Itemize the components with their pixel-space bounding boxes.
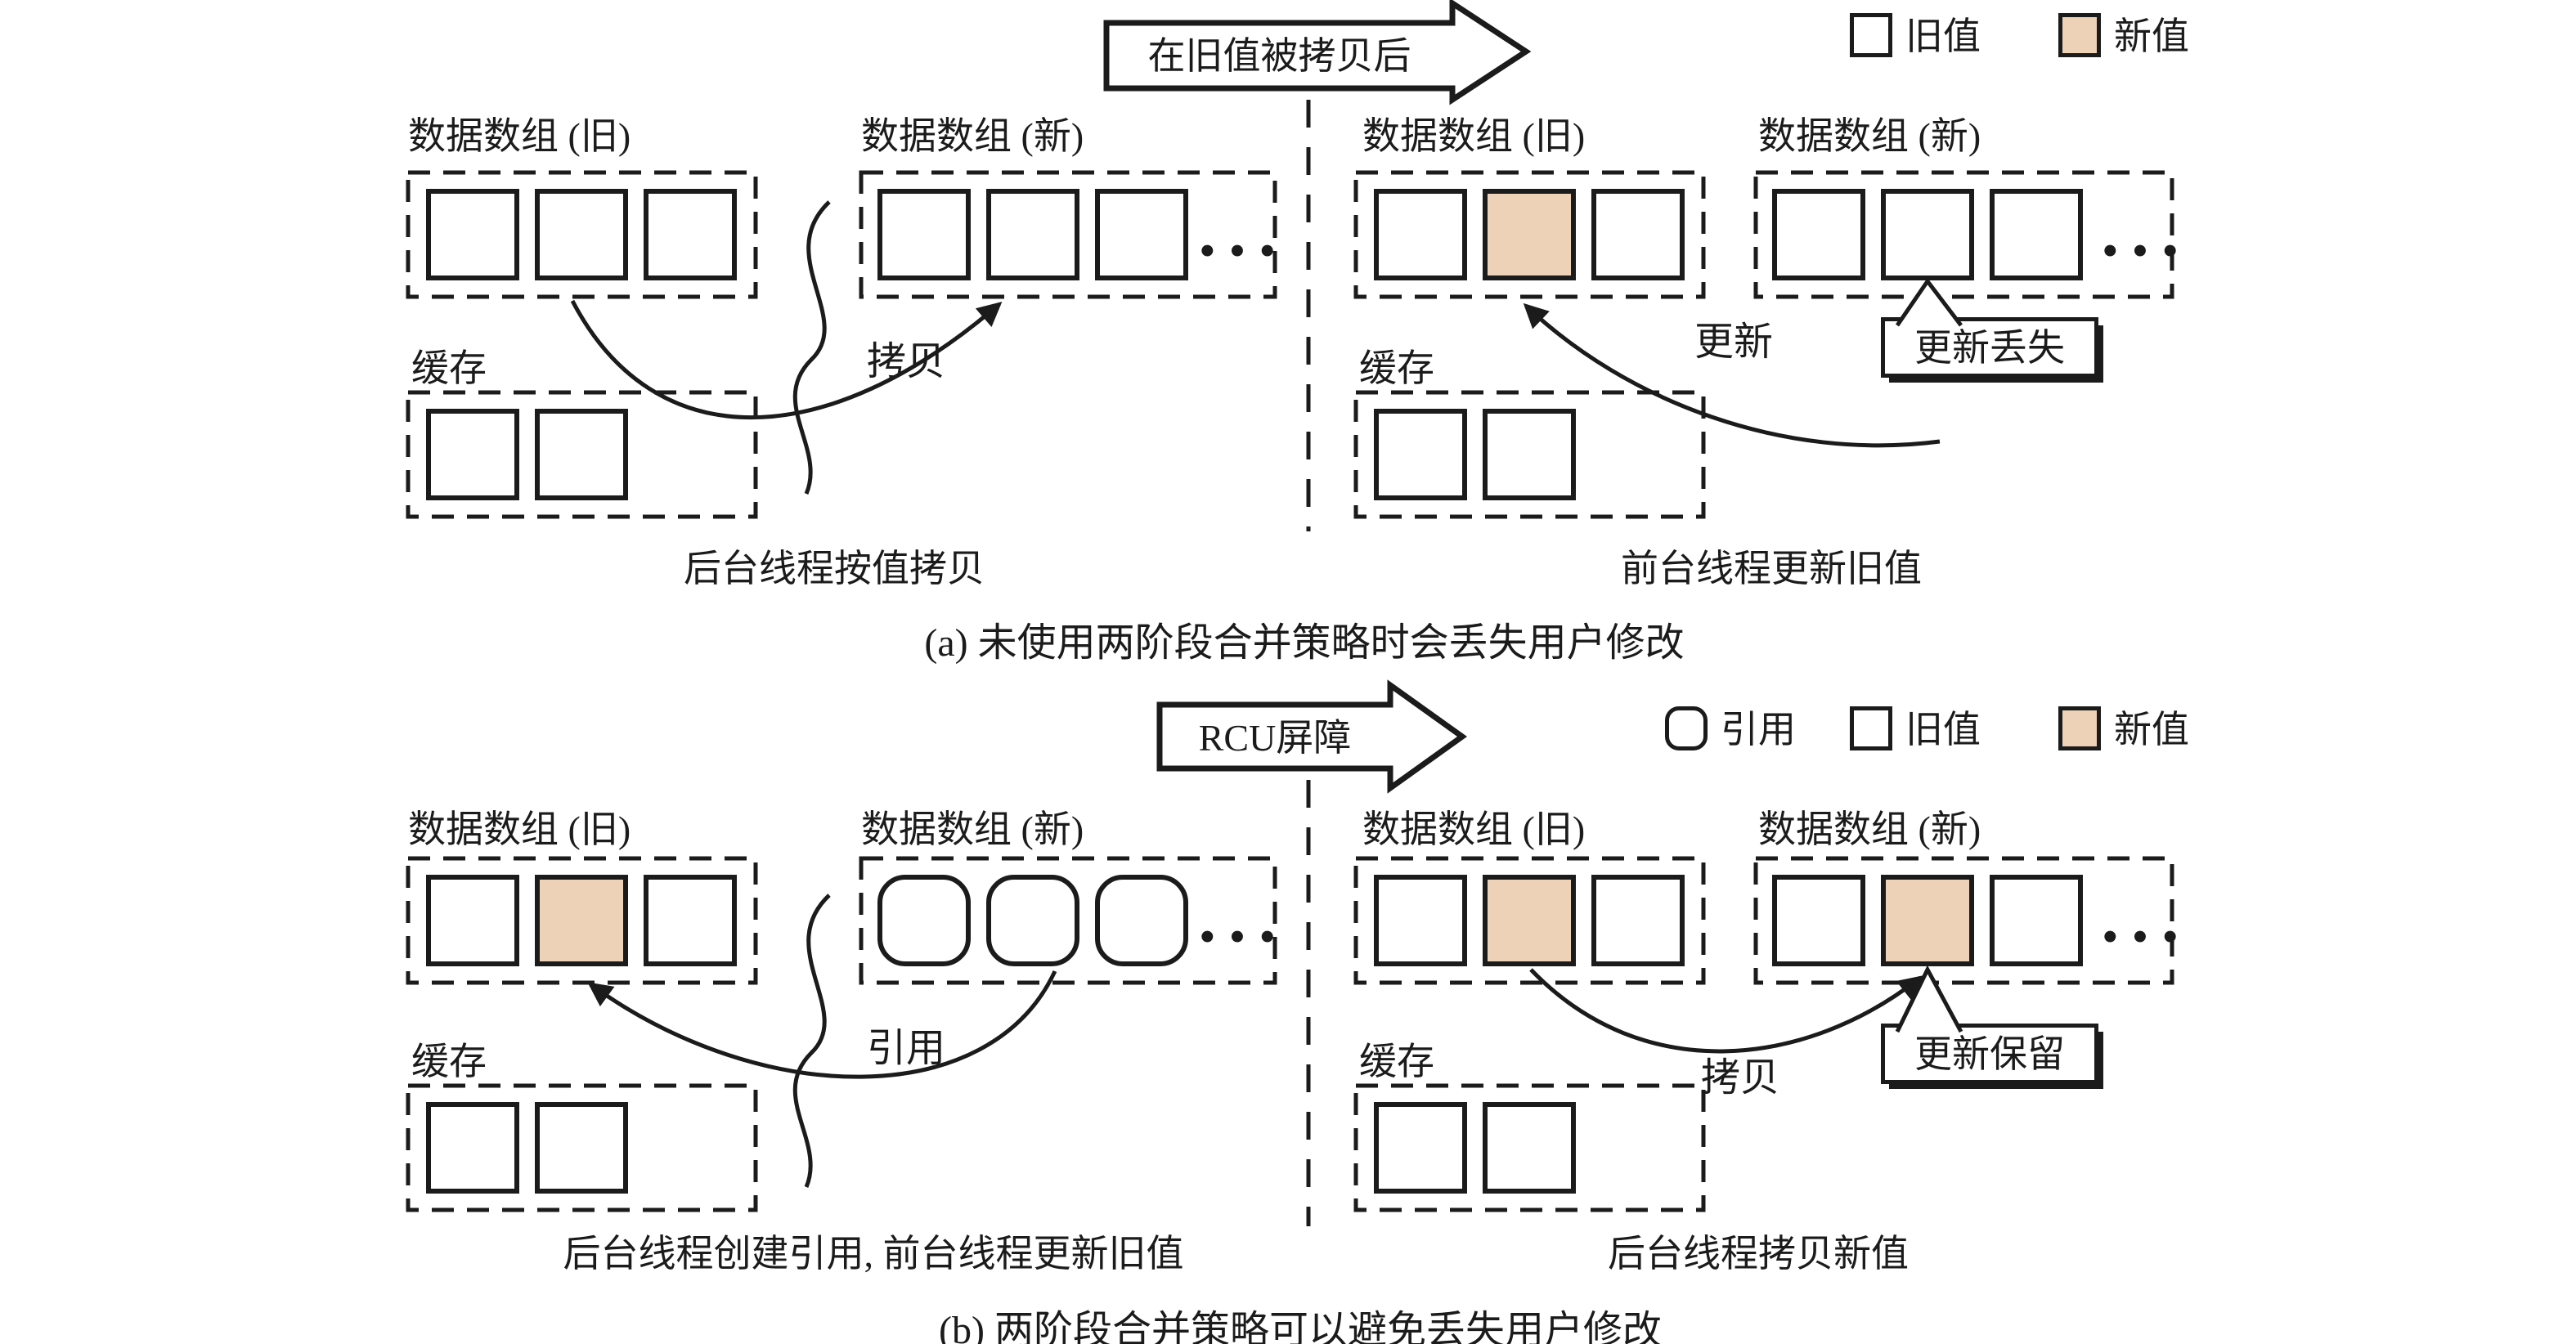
- array-cell-plain: [644, 189, 737, 280]
- array-cell-new: [1881, 875, 1974, 966]
- dashed-boxes-layer: [0, 0, 2576, 1344]
- a-update-label: 更新: [1694, 320, 1773, 365]
- array-cell-plain: [1591, 189, 1685, 280]
- b-ref-arrow: [590, 971, 1055, 1077]
- array-cell-plain: [1591, 875, 1685, 966]
- b-right-old-array-cells: [1374, 875, 1685, 966]
- b-stage-arrow-label: RCU屏障: [1160, 716, 1390, 760]
- array-cell-plain: [1483, 1102, 1576, 1194]
- array-cell-plain: [426, 189, 519, 280]
- array-cell-plain: [1990, 875, 2083, 966]
- a-left-cache-title: 缓存: [411, 347, 487, 391]
- array-cell-ref: [1095, 875, 1188, 966]
- b-left-ellipsis: ···: [1196, 890, 1286, 982]
- a-right-old-array-title: 数据数组 (旧): [1362, 114, 1585, 159]
- array-cell-new: [535, 875, 628, 966]
- a-right-cache-title: 缓存: [1359, 347, 1434, 391]
- b-legend-new-value-label: 新值: [2114, 710, 2189, 750]
- a-update-lost-callout: 更新丢失: [1881, 317, 2098, 378]
- figure-canvas: 数据数组 (旧) 数据数组 (新) 数据数组 (旧) 数据数组 (新) 缓存 缓…: [0, 0, 2576, 1344]
- b-left-cache-title: 缓存: [411, 1040, 487, 1084]
- a-brace-squiggle: [795, 202, 829, 494]
- a-left-old-array-title: 数据数组 (旧): [408, 114, 631, 159]
- b-left-old-array-cells: [426, 875, 737, 966]
- array-cell-new: [1483, 189, 1576, 280]
- b-right-cache-title: 缓存: [1359, 1040, 1434, 1084]
- array-cell-plain: [986, 189, 1079, 280]
- array-cell-plain: [426, 1102, 519, 1194]
- b-right-cache-cells: [1374, 1102, 1576, 1194]
- array-cell-plain: [1990, 189, 2083, 280]
- array-cell-plain: [535, 1102, 628, 1194]
- a-legend-new-value-icon: [2058, 13, 2101, 57]
- arrows-layer: [0, 0, 2576, 1344]
- a-right-ellipsis: ···: [2098, 204, 2188, 296]
- array-cell-plain: [1772, 875, 1865, 966]
- b-callout-pointer-fill: [1897, 970, 1961, 1032]
- b-legend-reference-icon: [1665, 706, 1708, 750]
- array-cell-plain: [1374, 409, 1467, 500]
- a-copy-label: 拷贝: [867, 340, 945, 384]
- a-left-ellipsis: ···: [1196, 204, 1286, 296]
- array-cell-plain: [1881, 189, 1974, 280]
- b-copy-label: 拷贝: [1701, 1056, 1779, 1100]
- a-right-cache-cells: [1374, 409, 1576, 500]
- array-cell-ref: [877, 875, 971, 966]
- a-stage-arrow-label: 在旧值被拷贝后: [1106, 34, 1452, 78]
- b-left-new-array-title: 数据数组 (新): [861, 808, 1084, 852]
- a-left-old-array-cells: [426, 189, 737, 280]
- b-brace-squiggle: [795, 895, 829, 1187]
- a-legend-new-value-label: 新值: [2114, 16, 2189, 57]
- b-update-kept-callout: 更新保留: [1881, 1024, 2098, 1084]
- b-left-new-array-cells: [877, 875, 1188, 966]
- b-right-new-array-cells: [1772, 875, 2083, 966]
- array-cell-plain: [1095, 189, 1188, 280]
- array-cell-ref: [986, 875, 1079, 966]
- b-legend-reference-label: 引用: [1721, 710, 1796, 750]
- b-left-cache-cells: [426, 1102, 628, 1194]
- array-cell-plain: [1483, 409, 1576, 500]
- b-right-old-array-title: 数据数组 (旧): [1362, 808, 1585, 852]
- a-caption: (a) 未使用两阶段合并策略时会丢失用户修改: [716, 619, 1893, 668]
- b-right-caption: 后台线程拷贝新值: [1497, 1231, 2020, 1277]
- b-right-ellipsis: ···: [2098, 890, 2188, 982]
- b-legend-old-value-icon: [1850, 706, 1892, 750]
- b-right-new-array-title: 数据数组 (新): [1758, 808, 1981, 852]
- array-cell-plain: [1772, 189, 1865, 280]
- a-left-new-array-title: 数据数组 (新): [861, 114, 1084, 159]
- b-left-old-array-title: 数据数组 (旧): [408, 808, 631, 852]
- b-copy-arrow: [1531, 970, 1920, 1051]
- b-legend-old-value-label: 旧值: [1905, 710, 1981, 750]
- a-right-caption: 前台线程更新旧值: [1510, 546, 2033, 592]
- array-cell-plain: [1374, 189, 1467, 280]
- array-cell-plain: [1374, 875, 1467, 966]
- array-cell-plain: [877, 189, 971, 280]
- array-cell-new: [1483, 875, 1576, 966]
- a-legend-old-value-label: 旧值: [1905, 16, 1981, 57]
- b-callout-pointer: [1897, 970, 1961, 1032]
- b-left-caption: 后台线程创建引用, 前台线程更新旧值: [456, 1231, 1290, 1277]
- a-left-new-array-cells: [877, 189, 1188, 280]
- array-cell-plain: [426, 409, 519, 500]
- a-left-cache-cells: [426, 409, 628, 500]
- a-right-old-array-cells: [1374, 189, 1685, 280]
- b-caption: (b) 两阶段合并策略可以避免丢失用户修改: [711, 1306, 1889, 1344]
- array-cell-plain: [535, 409, 628, 500]
- b-legend-new-value-icon: [2058, 706, 2101, 750]
- a-left-caption: 后台线程按值拷贝: [572, 546, 1096, 592]
- a-legend-old-value-icon: [1850, 13, 1892, 57]
- a-right-new-array-title: 数据数组 (新): [1758, 114, 1981, 159]
- array-cell-plain: [426, 875, 519, 966]
- array-cell-plain: [644, 875, 737, 966]
- b-ref-label: 引用: [867, 1027, 945, 1071]
- array-cell-plain: [1374, 1102, 1467, 1194]
- array-cell-plain: [535, 189, 628, 280]
- a-right-new-array-cells: [1772, 189, 2083, 280]
